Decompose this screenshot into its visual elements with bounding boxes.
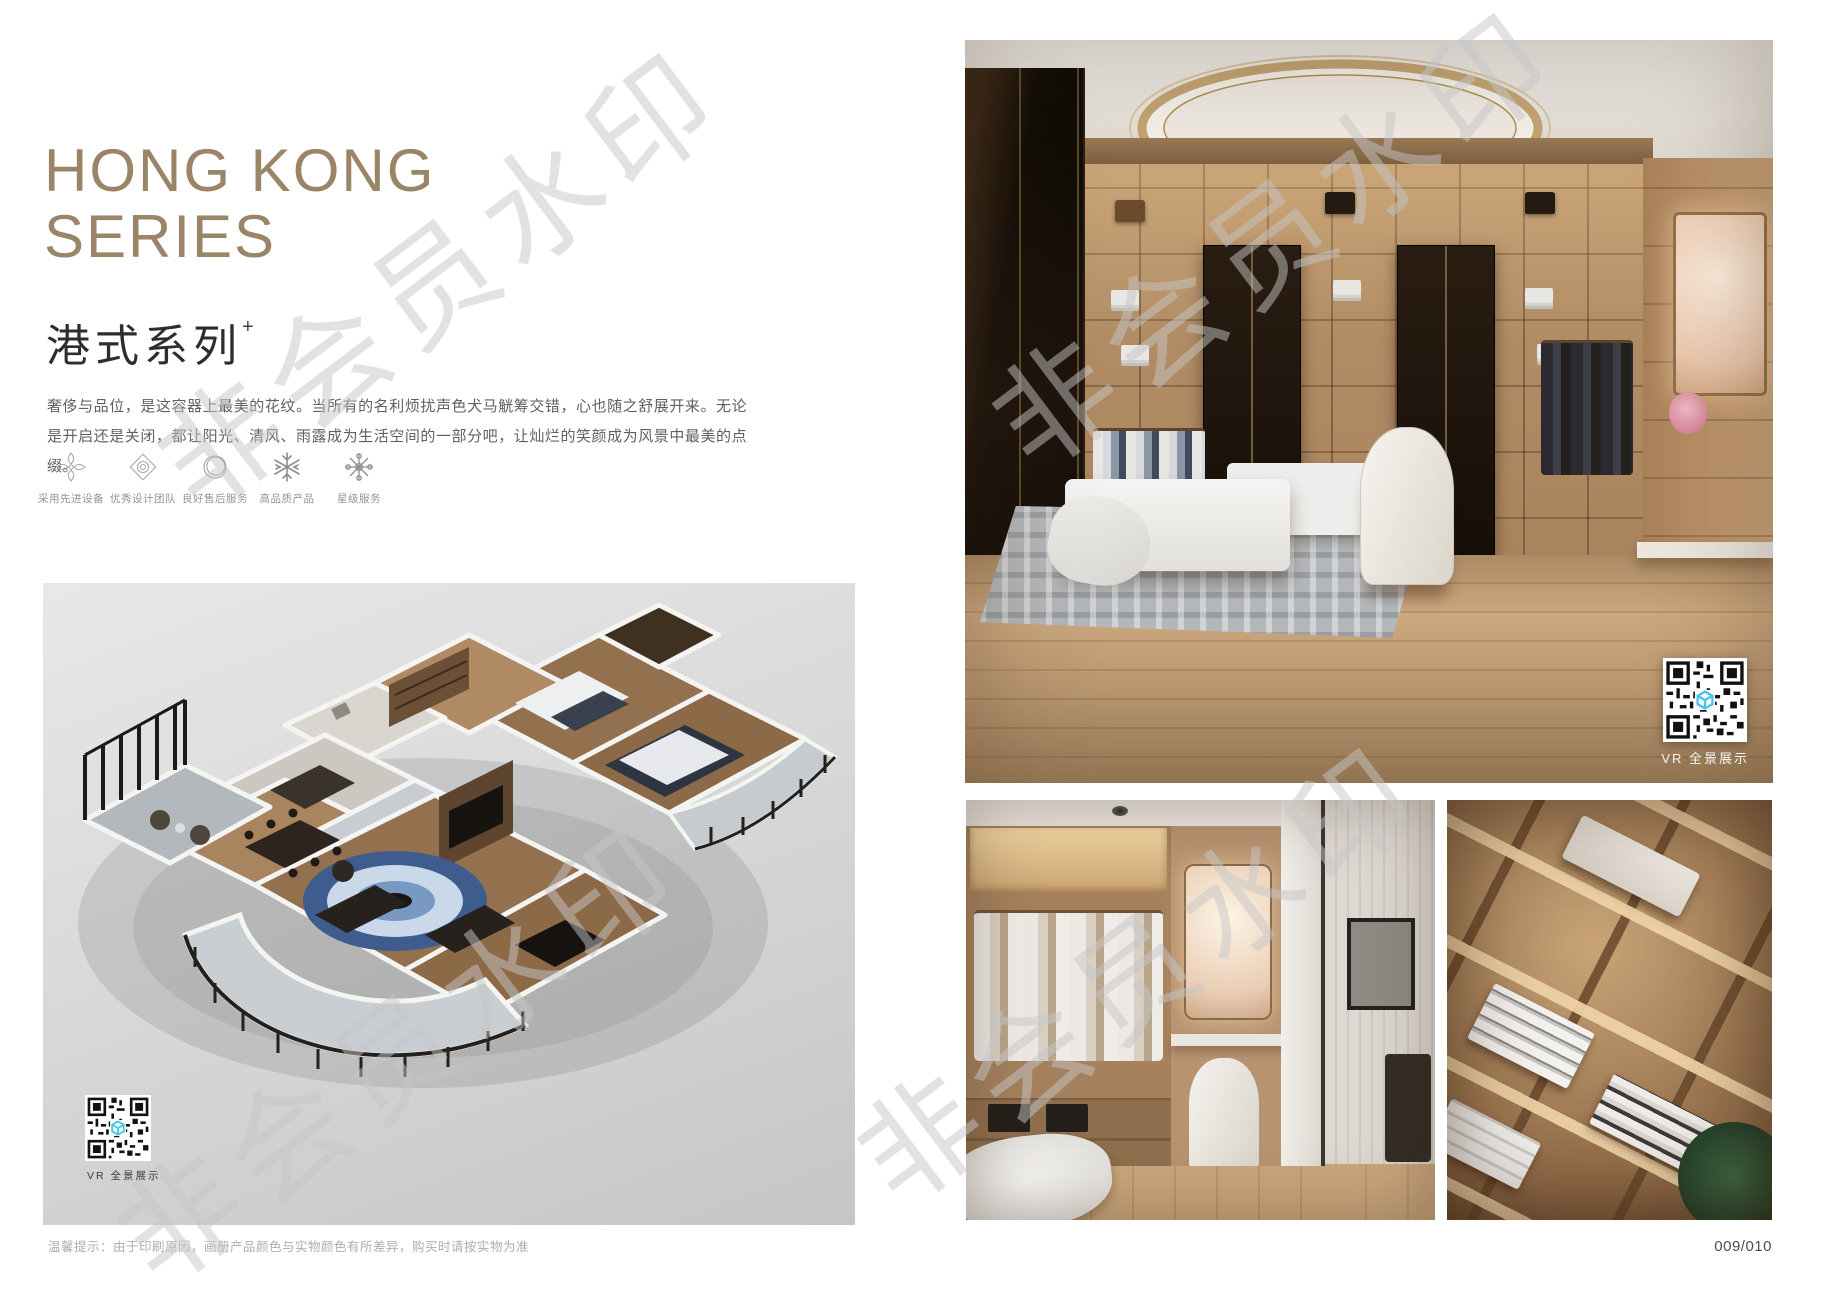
series-subtitle-plus-mark: +	[242, 316, 254, 338]
folded-linen-stack	[1525, 288, 1553, 303]
vanity-mirror	[1673, 212, 1767, 396]
handbag	[1525, 192, 1555, 214]
vanity-nook	[1171, 826, 1281, 1220]
upholstered-chair	[1360, 427, 1454, 585]
lit-top-shelf	[970, 828, 1167, 894]
feature-after-sales: 良好售后服务	[184, 450, 246, 506]
vr-qr-code	[1663, 658, 1747, 742]
handbag	[1325, 192, 1355, 214]
hanging-clothes-right	[1541, 340, 1633, 475]
print-disclaimer: 温馨提示：由于印刷原因，画册产品颜色与实物颜色有所差异，购买时请按实物为准	[48, 1236, 529, 1255]
snowflake-ornament-icon	[270, 450, 304, 484]
feature-design-team: 优秀设计团队	[112, 450, 174, 506]
closet-vanity-photo	[966, 800, 1435, 1220]
vanity-desk	[1171, 1034, 1287, 1046]
side-cabinet	[1385, 1054, 1431, 1162]
feature-label: 高品质产品	[260, 491, 315, 506]
floorplan-render	[43, 583, 855, 1225]
series-title: HONG KONG SERIES	[44, 138, 435, 270]
feature-advanced-equipment: 采用先进设备	[40, 450, 102, 506]
petal-ornament-icon	[54, 450, 88, 484]
series-title-line2: SERIES	[44, 204, 435, 270]
vr-panorama-label: VR 全景展示	[87, 1168, 161, 1183]
feature-label: 良好售后服务	[182, 491, 248, 506]
bedroom-glimpse	[1325, 800, 1435, 1220]
wall-pillar	[1281, 800, 1323, 1220]
catalog-spread-page: HONG KONG SERIES 港式系列+ 奢侈与品位，是这容器上最美的花纹。…	[0, 0, 1836, 1307]
shelf-detail-photo	[1447, 800, 1772, 1220]
feature-label: 采用先进设备	[38, 491, 104, 506]
handbag	[1115, 200, 1145, 222]
hanging-garments	[974, 910, 1163, 1061]
wood-floor	[1325, 1164, 1435, 1220]
vanity-desk	[1637, 542, 1773, 558]
folded-linen-stack	[1333, 280, 1361, 295]
star-ornament-icon	[342, 450, 376, 484]
floorplan-image: VR 全景展示	[43, 583, 855, 1225]
feature-quality-product: 高品质产品	[256, 450, 318, 506]
series-title-line1: HONG KONG	[44, 138, 435, 204]
walkin-closet-photo: VR 全景展示	[965, 40, 1773, 783]
vr-qr-code	[85, 1095, 151, 1161]
storage-box	[988, 1104, 1030, 1132]
vanity-mirror	[1184, 864, 1272, 1020]
vanity-chair	[1189, 1058, 1259, 1176]
rosette-ornament-icon	[126, 450, 160, 484]
feature-list: 采用先进设备 优秀设计团队 良好售后服务 高品质产品 星级服务	[40, 450, 390, 506]
folded-linen-stack	[1111, 290, 1139, 305]
series-subtitle-cn: 港式系列	[46, 322, 242, 371]
vr-panorama-label: VR 全景展示	[1661, 748, 1749, 767]
feature-star-service: 星级服务	[328, 450, 390, 506]
recessed-light	[1112, 806, 1128, 816]
series-subtitle: 港式系列+	[46, 310, 254, 374]
wood-soffit	[1075, 138, 1653, 164]
folded-linen-stack	[1121, 345, 1149, 360]
feature-label: 优秀设计团队	[110, 491, 176, 506]
storage-box	[1046, 1104, 1088, 1132]
ring-ornament-icon	[198, 450, 232, 484]
page-number: 009/010	[1706, 1238, 1772, 1255]
wall-art	[1347, 918, 1415, 1010]
feature-label: 星级服务	[337, 491, 381, 506]
flower-vase	[1669, 392, 1707, 434]
